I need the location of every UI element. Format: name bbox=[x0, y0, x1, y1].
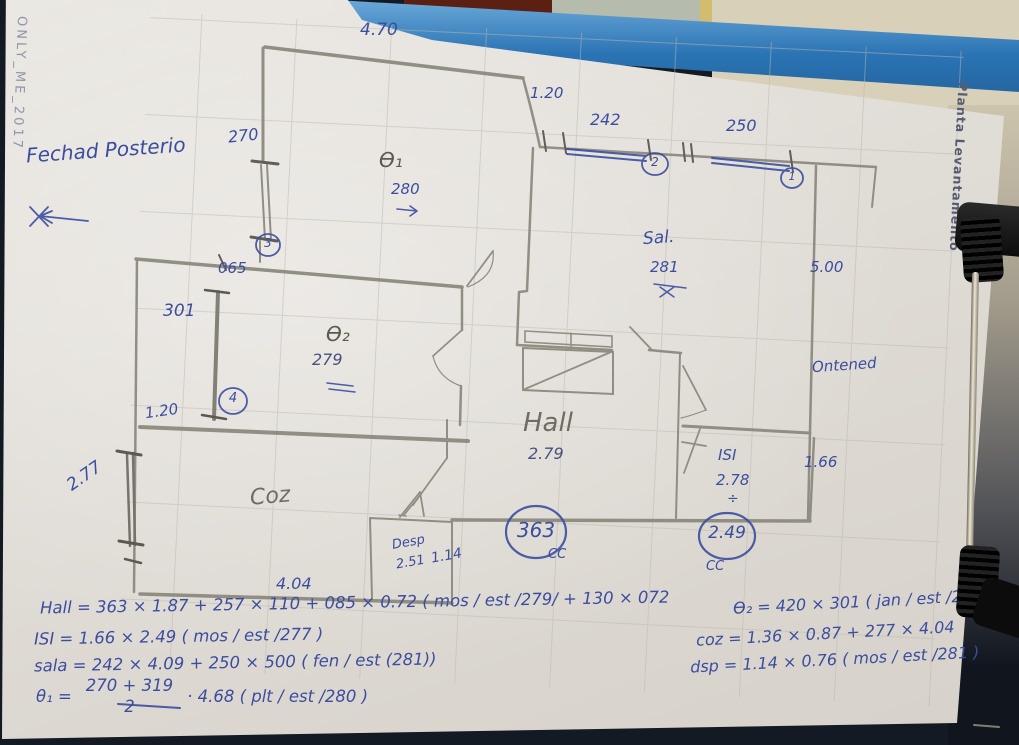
circled-ref-2: 2 bbox=[648, 156, 662, 169]
fraction-numerator: 270 + 319 bbox=[80, 678, 179, 697]
formula-theta1: θ₁ = 270 + 319 2 · 4.68 ( plt / est /280… bbox=[36, 678, 368, 715]
label-q1-height: 280 bbox=[391, 182, 420, 198]
label-opening-120-top: 1.20 bbox=[530, 86, 563, 102]
room-label-coz: Coz bbox=[249, 483, 291, 510]
fraction-denominator: 2 bbox=[124, 697, 135, 716]
photo-of-floorplan-on-clipboard: ONLY_ME_2017 Planta Levantamento Fechad … bbox=[0, 0, 1019, 745]
formula-theta1-fraction: 270 + 319 2 bbox=[80, 678, 179, 715]
room-label-hall: Hall bbox=[523, 410, 573, 437]
formula-theta1-lhs: θ₁ = bbox=[36, 688, 72, 705]
cc-mark-isi: CC bbox=[706, 560, 724, 574]
circled-isi-width: 2.49 bbox=[702, 525, 752, 543]
label-coz-width: 4.04 bbox=[276, 576, 312, 593]
label-window-242: 242 bbox=[590, 112, 621, 129]
label-isi-height: 2.78 bbox=[716, 473, 749, 489]
label-wall-065: 065 bbox=[218, 261, 247, 277]
circled-ref-3: 3 bbox=[261, 237, 275, 250]
room-label-isi: ISI bbox=[718, 448, 736, 464]
label-q2-height: 279 bbox=[312, 352, 343, 369]
formula-theta1-rhs: · 4.68 ( plt / est /280 ) bbox=[187, 688, 368, 705]
label-window-270: 270 bbox=[227, 126, 259, 146]
label-top-width: 4.70 bbox=[360, 22, 398, 40]
label-window-250: 250 bbox=[726, 118, 757, 135]
divide-mark: ÷ bbox=[727, 492, 739, 507]
label-sala-height: 281 bbox=[650, 260, 679, 276]
room-symbol-q2: Ɵ₂ bbox=[326, 324, 350, 345]
room-symbol-q1: Ɵ₁ bbox=[379, 150, 403, 171]
cc-mark-hall: CC bbox=[548, 548, 566, 562]
label-length-166: 1.66 bbox=[804, 455, 837, 471]
label-window-301: 301 bbox=[163, 303, 195, 321]
circled-ref-4: 4 bbox=[226, 392, 240, 406]
label-length-500: 5.00 bbox=[810, 260, 843, 276]
clip-top-grip bbox=[960, 215, 1005, 284]
circled-hall-width: 363 bbox=[514, 520, 558, 541]
room-label-sala: Sal. bbox=[642, 229, 675, 249]
label-hall-height: 2.79 bbox=[528, 446, 564, 463]
circled-ref-1: 1 bbox=[785, 171, 799, 183]
